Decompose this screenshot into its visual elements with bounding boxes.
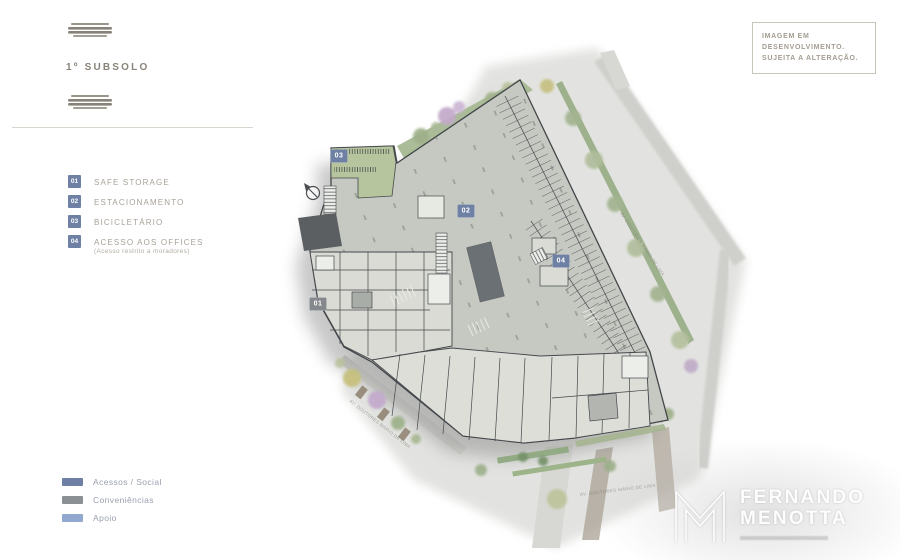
legend-label: BICICLETÁRIO (94, 218, 163, 227)
category-legend: Acessos / Social Conveniências Apoio (62, 477, 162, 531)
plan-marker-04: 04 (553, 255, 570, 268)
plan-marker-03: 03 (331, 150, 348, 163)
legend-label: ACESSO AOS OFFICES (94, 238, 204, 247)
watermark-subtitle-bar (740, 536, 828, 540)
floor-stack-icon (68, 94, 112, 112)
color-swatch (62, 514, 83, 522)
legend-item-acesso-offices: 04 ACESSO AOS OFFICES (Acesso restrito a… (68, 235, 204, 255)
disclaimer-line: IMAGEM EM (762, 31, 866, 42)
legend-sublabel: (Acesso restrito a moradores) (94, 248, 204, 255)
category-label: Acessos / Social (93, 477, 162, 487)
brand-watermark: FERNANDO MENOTTA (672, 484, 865, 546)
legend-badge-03: 03 (68, 215, 81, 228)
plan-legend: 01 SAFE STORAGE 02 ESTACIONAMENTO 03 BIC… (68, 175, 204, 262)
watermark-line2: MENOTTA (740, 509, 865, 530)
legend-badge-02: 02 (68, 195, 81, 208)
disclaimer-line: DESENVOLVIMENTO. (762, 42, 866, 53)
disclaimer-line: SUJEITA A ALTERAÇÃO. (762, 53, 866, 64)
entry-ramp (298, 213, 342, 251)
watermark-line1: FERNANDO (740, 488, 865, 509)
category-label: Conveniências (93, 495, 154, 505)
menotta-monogram-icon (672, 484, 728, 546)
legend-item-bicicletario: 03 BICICLETÁRIO (68, 215, 204, 228)
legend-item-safe-storage: 01 SAFE STORAGE (68, 175, 204, 188)
plan-marker-01: 01 (310, 298, 327, 311)
legend-badge-01: 01 (68, 175, 81, 188)
floorplan-page: 01020304AV. DOUTORES MÁRIO DE LIMAAV. DO… (0, 0, 900, 560)
category-item-conveniencias: Conveniências (62, 495, 162, 505)
floor-stack-icon (68, 22, 112, 40)
legend-badge-04: 04 (68, 235, 81, 248)
legend-label: ESTACIONAMENTO (94, 198, 184, 207)
disclaimer-box: IMAGEM EM DESENVOLVIMENTO. SUJEITA A ALT… (752, 22, 876, 74)
category-item-acessos-social: Acessos / Social (62, 477, 162, 487)
color-swatch (62, 478, 83, 486)
header-divider (12, 127, 253, 128)
legend-item-estacionamento: 02 ESTACIONAMENTO (68, 195, 204, 208)
category-item-apoio: Apoio (62, 513, 162, 523)
plan-marker-02: 02 (458, 205, 475, 218)
page-title: 1º SUBSOLO (66, 62, 149, 73)
category-label: Apoio (93, 513, 117, 523)
legend-label: SAFE STORAGE (94, 178, 170, 187)
color-swatch (62, 496, 83, 504)
